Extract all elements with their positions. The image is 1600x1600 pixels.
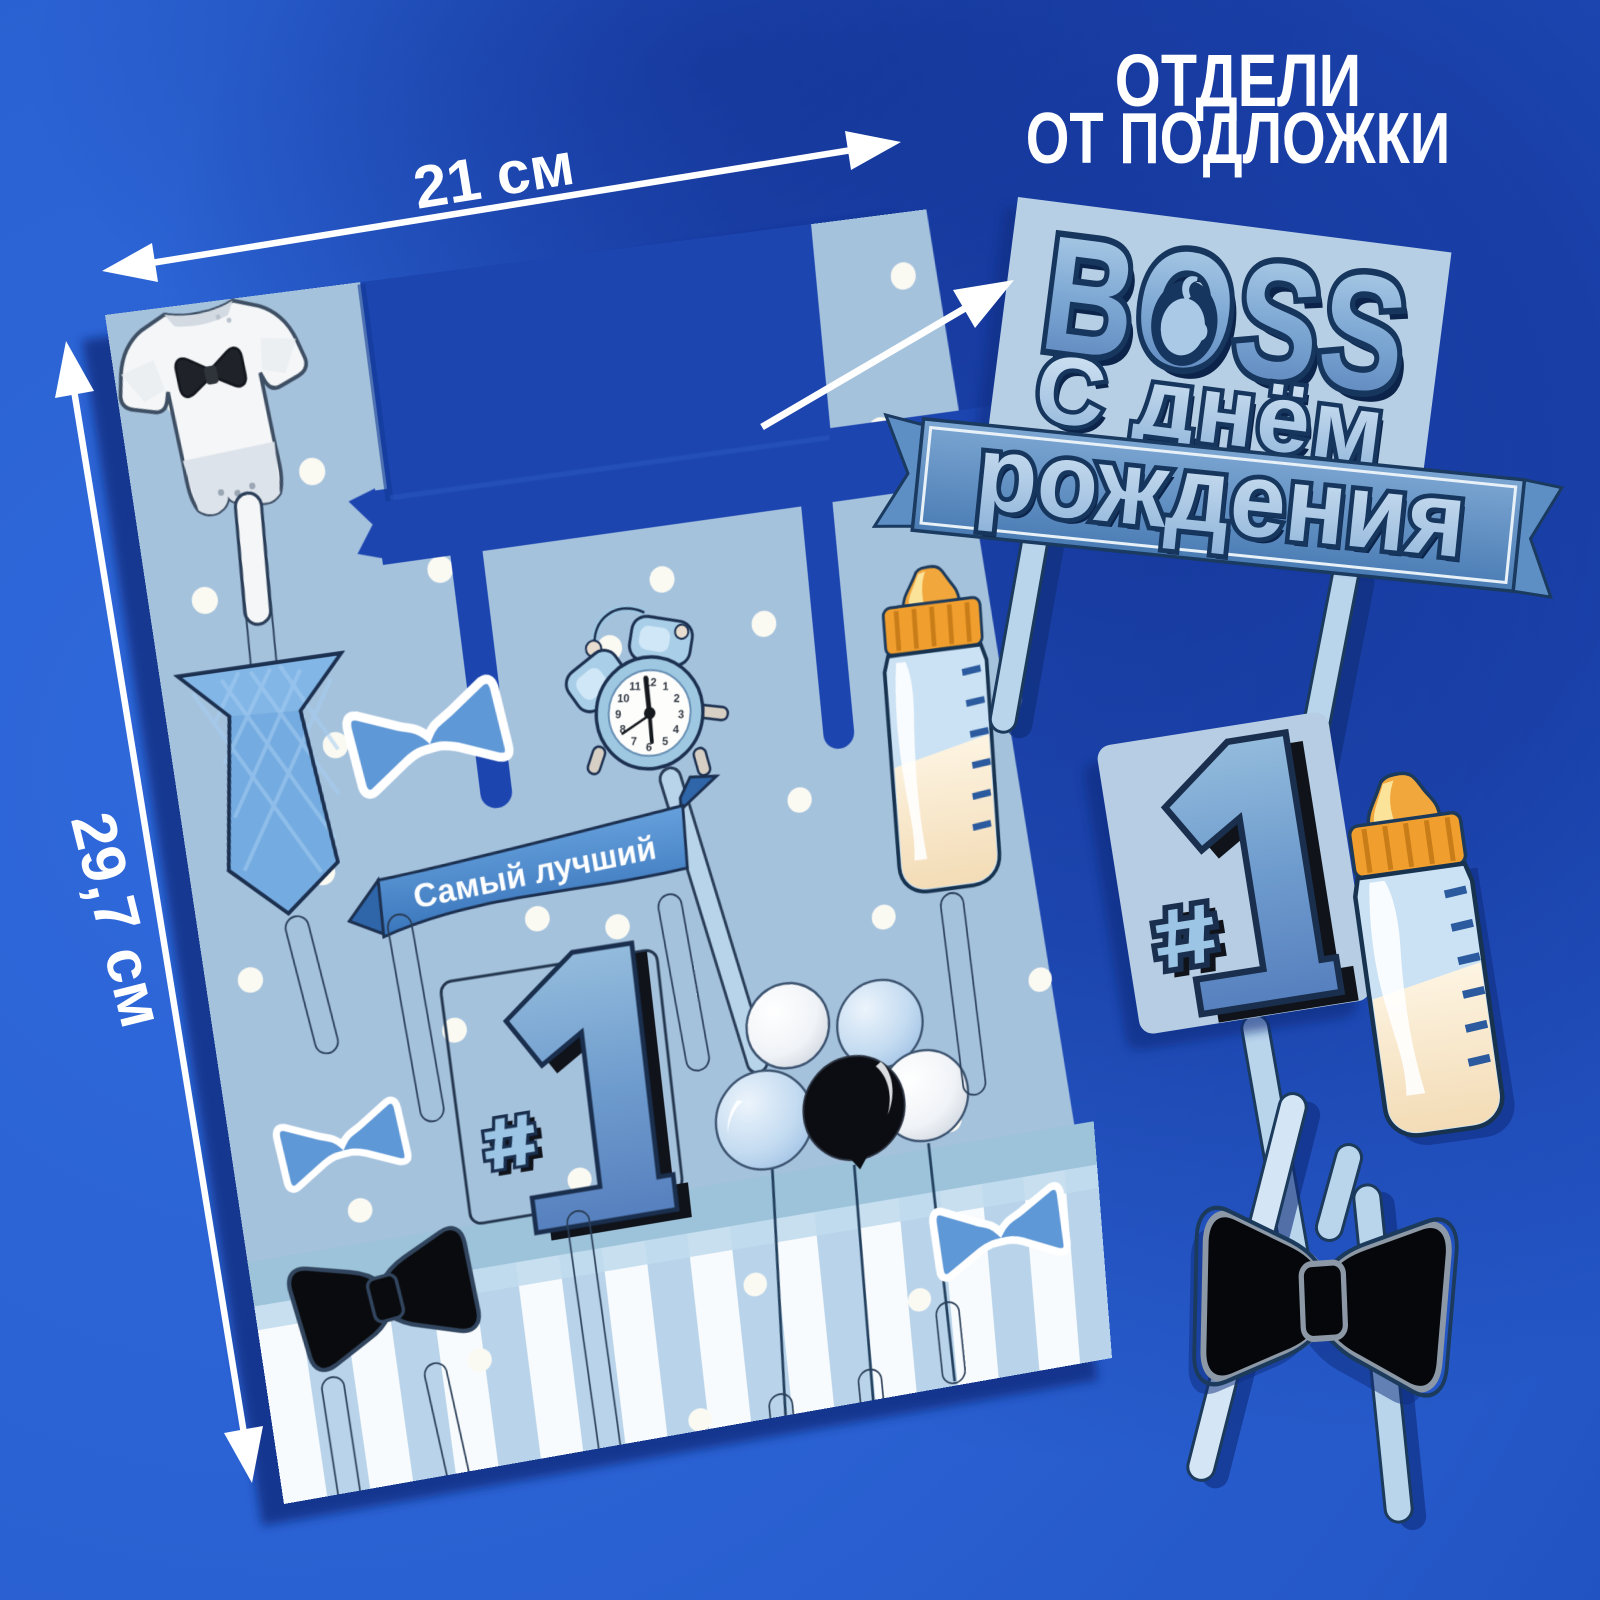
- svg-text:21 см: 21 см: [409, 130, 579, 222]
- svg-text:ОТ ПОДЛОЖКИ: ОТ ПОДЛОЖКИ: [1026, 98, 1451, 178]
